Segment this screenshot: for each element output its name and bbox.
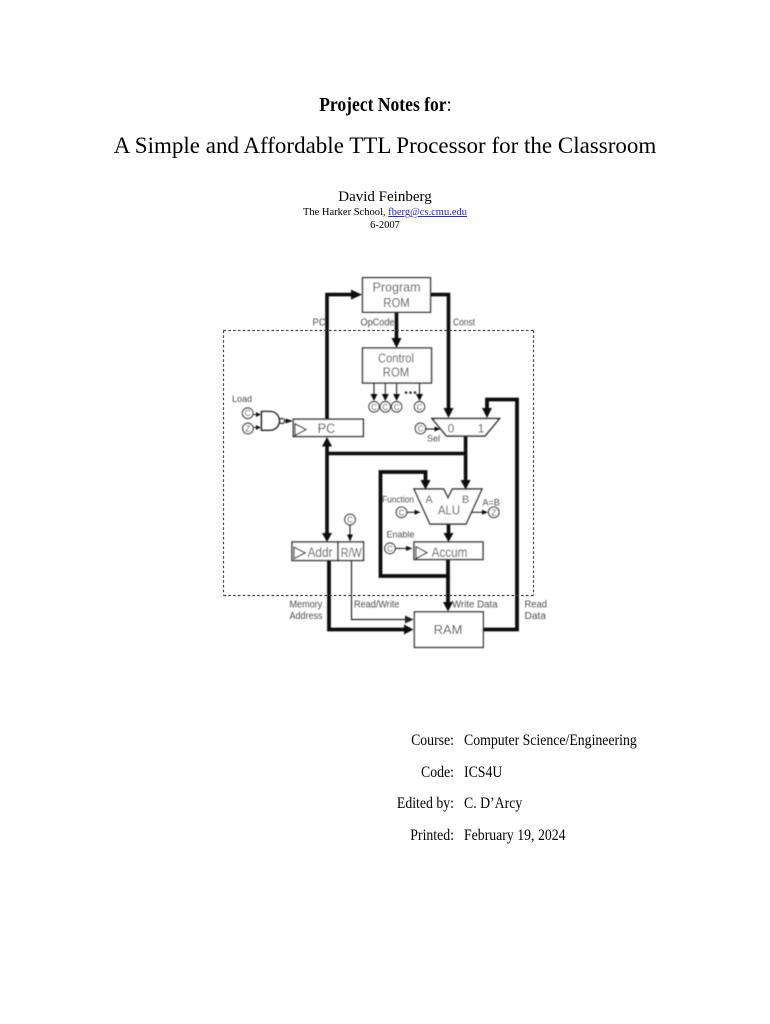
svg-text:PC: PC [318,421,336,436]
svg-text:0: 0 [448,421,455,435]
svg-text:Read/Write: Read/Write [354,600,400,611]
svg-text:Z: Z [245,425,250,434]
svg-text:A=B: A=B [483,498,500,508]
svg-text:R/W: R/W [341,545,363,560]
svg-text:Control: Control [378,351,414,365]
svg-text:Enable: Enable [387,530,415,540]
svg-text:Write Data: Write Data [452,600,498,611]
svg-text:Const: Const [453,318,475,329]
svg-text:Z: Z [491,508,496,517]
svg-text:C: C [371,403,377,412]
svg-text:C: C [418,425,424,434]
svg-text:A: A [425,494,433,506]
svg-text:C: C [417,403,423,412]
svg-text:Program: Program [373,281,421,295]
svg-text:Function: Function [382,495,414,505]
svg-text:PC: PC [313,318,326,329]
svg-text:C: C [394,403,400,412]
svg-text:C: C [387,544,393,553]
svg-text:C: C [245,409,251,418]
svg-text:Read: Read [525,600,547,611]
svg-text:Data: Data [525,611,547,622]
svg-text:C: C [347,516,353,525]
svg-text:Load: Load [232,394,252,404]
svg-text:C: C [399,508,405,517]
svg-text:B: B [462,494,469,506]
svg-text:Addr: Addr [308,545,333,560]
svg-text:RAM: RAM [434,622,463,637]
svg-text:ROM: ROM [383,365,410,379]
svg-text:Address: Address [290,611,323,622]
svg-text:C: C [382,403,388,412]
svg-text:Accum: Accum [432,545,468,560]
svg-text:1: 1 [478,421,485,435]
svg-text:ALU: ALU [438,504,460,518]
svg-text:Memory: Memory [290,600,323,611]
svg-text:Sel: Sel [427,434,440,444]
svg-text:ROM: ROM [383,296,410,310]
svg-text:OpCode: OpCode [361,318,395,329]
